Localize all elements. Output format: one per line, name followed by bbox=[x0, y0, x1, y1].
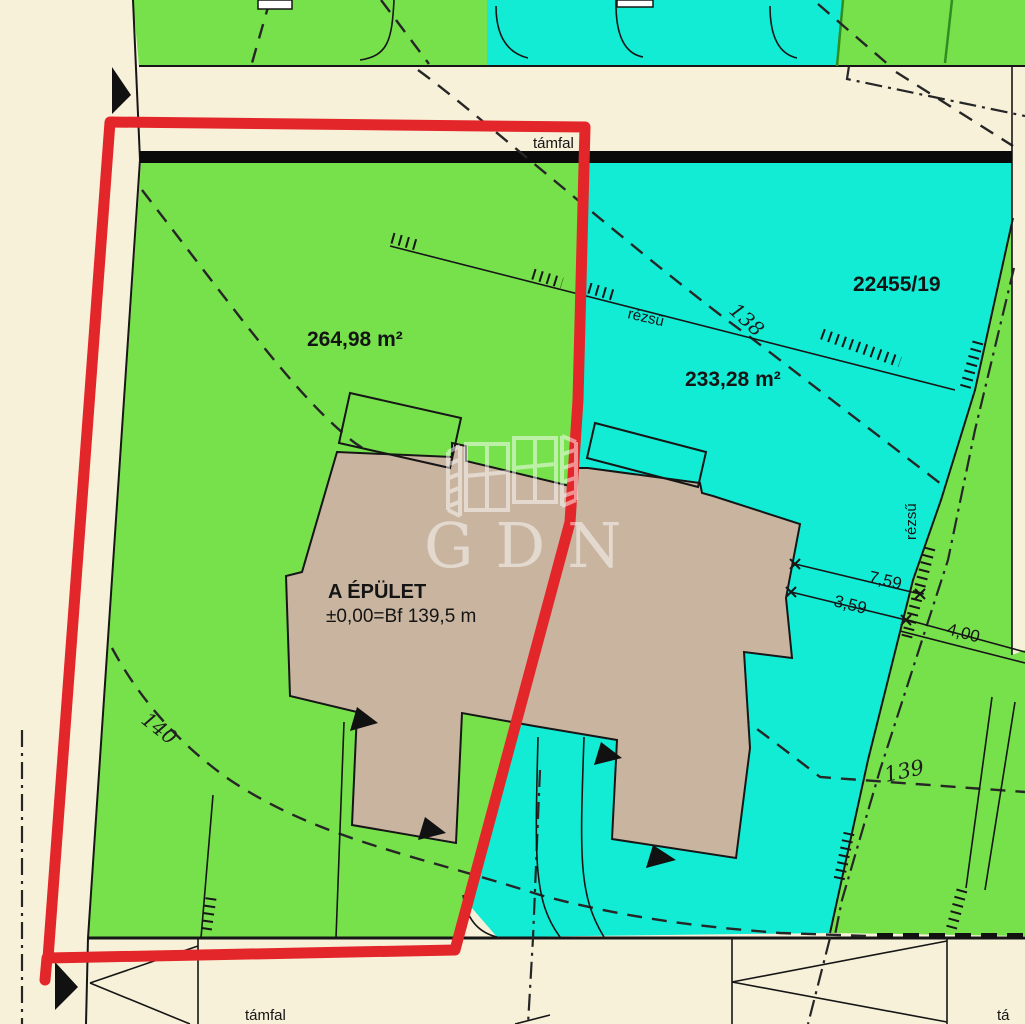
label-parcel-number: 22455/19 bbox=[853, 273, 941, 296]
label-area-green: 264,98 m² bbox=[307, 328, 403, 351]
label-building-name: A ÉPÜLET bbox=[328, 580, 426, 603]
label-tamfal-top: támfal bbox=[533, 135, 574, 152]
label-area-cyan: 233,28 m² bbox=[685, 368, 781, 391]
gdn-logo-icon bbox=[448, 436, 576, 516]
top-edge-building-2 bbox=[617, 0, 653, 7]
gdn-watermark-text: GDN bbox=[424, 509, 644, 582]
top-green-parcel bbox=[133, 0, 487, 66]
red-outline-stub bbox=[45, 958, 47, 980]
label-tamfal-right-partial: tá bbox=[997, 1007, 1010, 1024]
top-green-parcel-2 bbox=[837, 0, 1025, 66]
top-edge-building-1 bbox=[258, 0, 292, 9]
label-tamfal-bottom: támfal bbox=[245, 1007, 286, 1024]
site-plan-map: GDN támfal támfal tá 22455/19 264,98 m² … bbox=[0, 0, 1025, 1024]
label-slope-right: rézsű bbox=[903, 503, 920, 540]
map-canvas: GDN támfal támfal tá 22455/19 264,98 m² … bbox=[0, 0, 1025, 1024]
label-building-elevation: ±0,00=Bf 139,5 m bbox=[326, 606, 476, 627]
